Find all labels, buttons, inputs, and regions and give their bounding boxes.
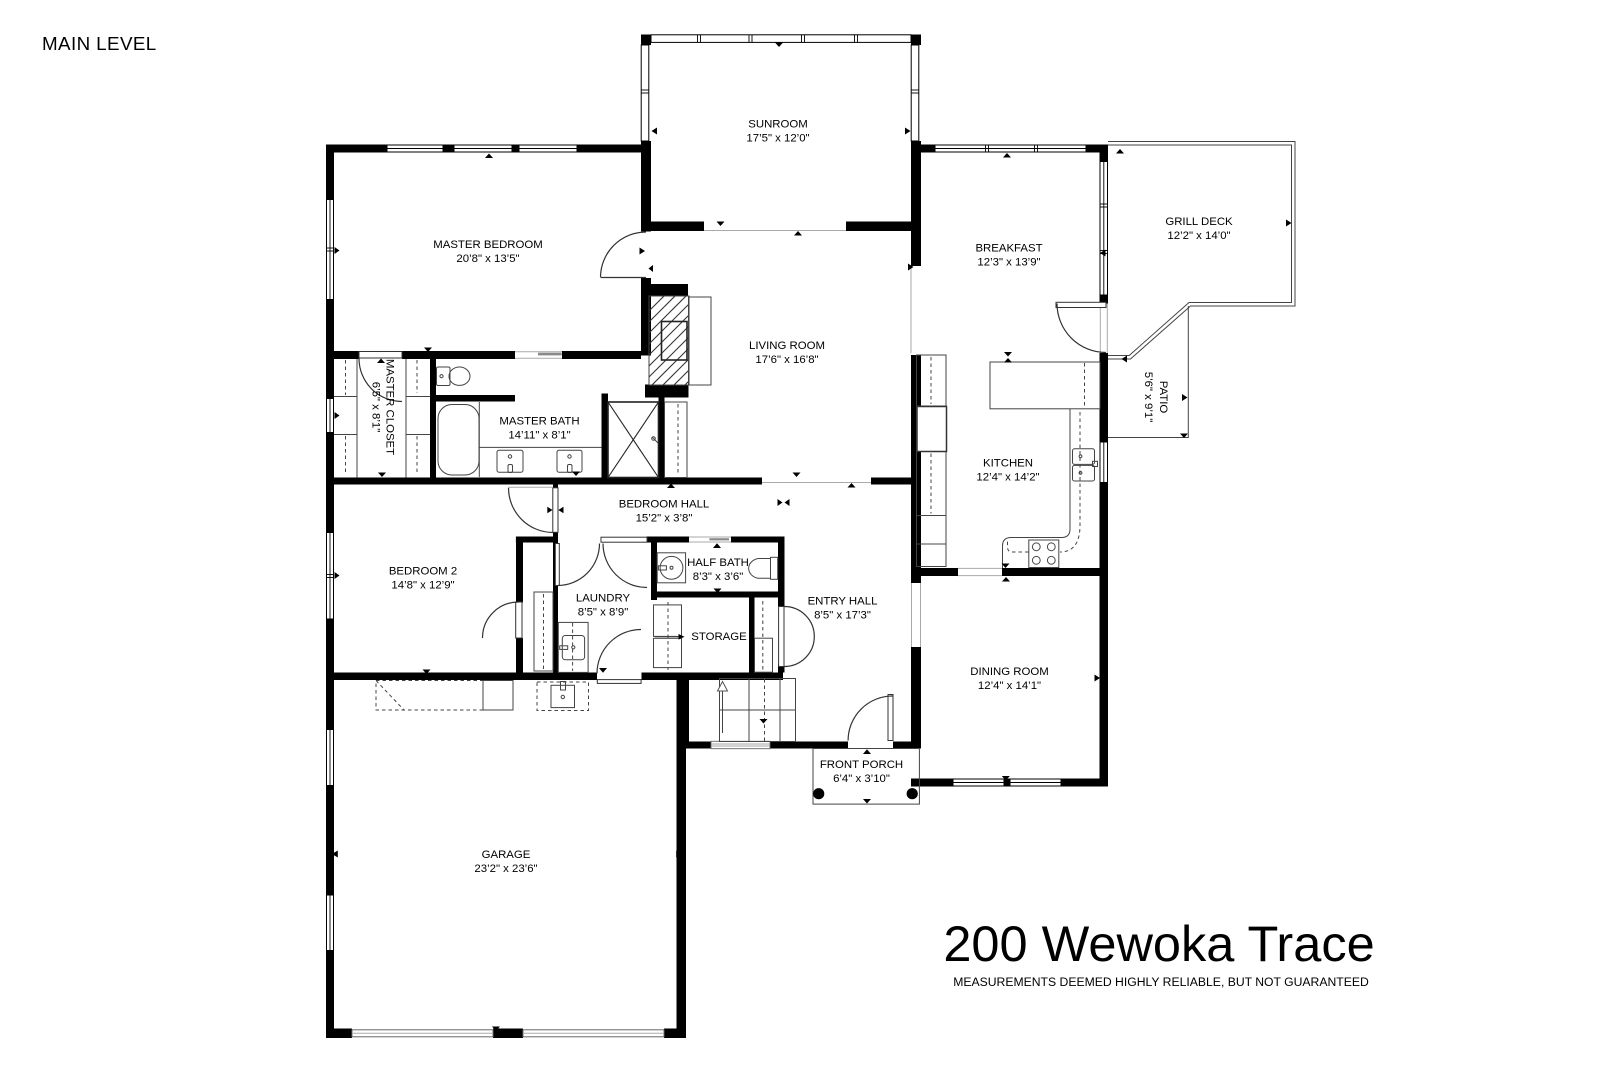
svg-text:8’5" x 17’3": 8’5" x 17’3" <box>814 610 871 622</box>
svg-text:17’6" x 16’8": 17’6" x 16’8" <box>755 354 818 366</box>
svg-text:MAIN LEVEL: MAIN LEVEL <box>42 33 157 54</box>
svg-text:20’8" x 13’5": 20’8" x 13’5" <box>456 253 519 265</box>
svg-text:STORAGE: STORAGE <box>691 631 747 643</box>
svg-text:LIVING ROOM: LIVING ROOM <box>749 340 825 352</box>
svg-text:BEDROOM 2: BEDROOM 2 <box>389 566 457 578</box>
svg-text:GRILL DECK: GRILL DECK <box>1165 216 1233 228</box>
svg-text:BEDROOM HALL: BEDROOM HALL <box>619 499 710 511</box>
svg-text:FRONT PORCH: FRONT PORCH <box>820 759 903 771</box>
svg-text:12’4" x 14’1": 12’4" x 14’1" <box>978 680 1041 692</box>
svg-text:MASTER BATH: MASTER BATH <box>499 416 579 428</box>
svg-text:PATIO: PATIO <box>1157 381 1169 414</box>
svg-text:23’2" x 23’6": 23’2" x 23’6" <box>474 863 537 875</box>
svg-text:SUNROOM: SUNROOM <box>748 119 807 131</box>
svg-text:KITCHEN: KITCHEN <box>983 458 1033 470</box>
svg-text:6’5" x 8’1": 6’5" x 8’1" <box>370 382 382 433</box>
svg-text:14’8" x 12’9": 14’8" x 12’9" <box>391 580 454 592</box>
svg-text:12’3" x 13’9": 12’3" x 13’9" <box>977 257 1040 269</box>
svg-text:MASTER CLOSET: MASTER CLOSET <box>384 359 396 455</box>
svg-text:12’4" x 14’2": 12’4" x 14’2" <box>976 472 1039 484</box>
svg-text:14’11" x 8’1": 14’11" x 8’1" <box>508 430 570 442</box>
svg-text:17’5" x 12’0": 17’5" x 12’0" <box>746 133 809 145</box>
svg-text:DINING ROOM: DINING ROOM <box>970 666 1048 678</box>
svg-text:HALF BATH: HALF BATH <box>687 557 749 569</box>
svg-text:200 Wewoka Trace: 200 Wewoka Trace <box>943 915 1374 972</box>
svg-text:LAUNDRY: LAUNDRY <box>576 593 631 605</box>
svg-text:8’5" x 8’9": 8’5" x 8’9" <box>578 607 629 619</box>
svg-text:8’3" x 3’6": 8’3" x 3’6" <box>693 571 744 583</box>
svg-text:12’2" x 14’0": 12’2" x 14’0" <box>1167 230 1230 242</box>
svg-text:BREAKFAST: BREAKFAST <box>975 243 1042 255</box>
svg-text:ENTRY HALL: ENTRY HALL <box>808 596 878 608</box>
svg-text:6’4" x 3’10": 6’4" x 3’10" <box>833 773 890 785</box>
svg-text:15’2" x 3’8": 15’2" x 3’8" <box>636 513 693 525</box>
svg-text:MASTER BEDROOM: MASTER BEDROOM <box>433 239 543 251</box>
svg-text:MEASUREMENTS DEEMED HIGHLY REL: MEASUREMENTS DEEMED HIGHLY RELIABLE, BUT… <box>953 975 1369 989</box>
svg-text:5’6" x 9’1": 5’6" x 9’1" <box>1142 372 1154 423</box>
svg-text:GARAGE: GARAGE <box>482 849 531 861</box>
